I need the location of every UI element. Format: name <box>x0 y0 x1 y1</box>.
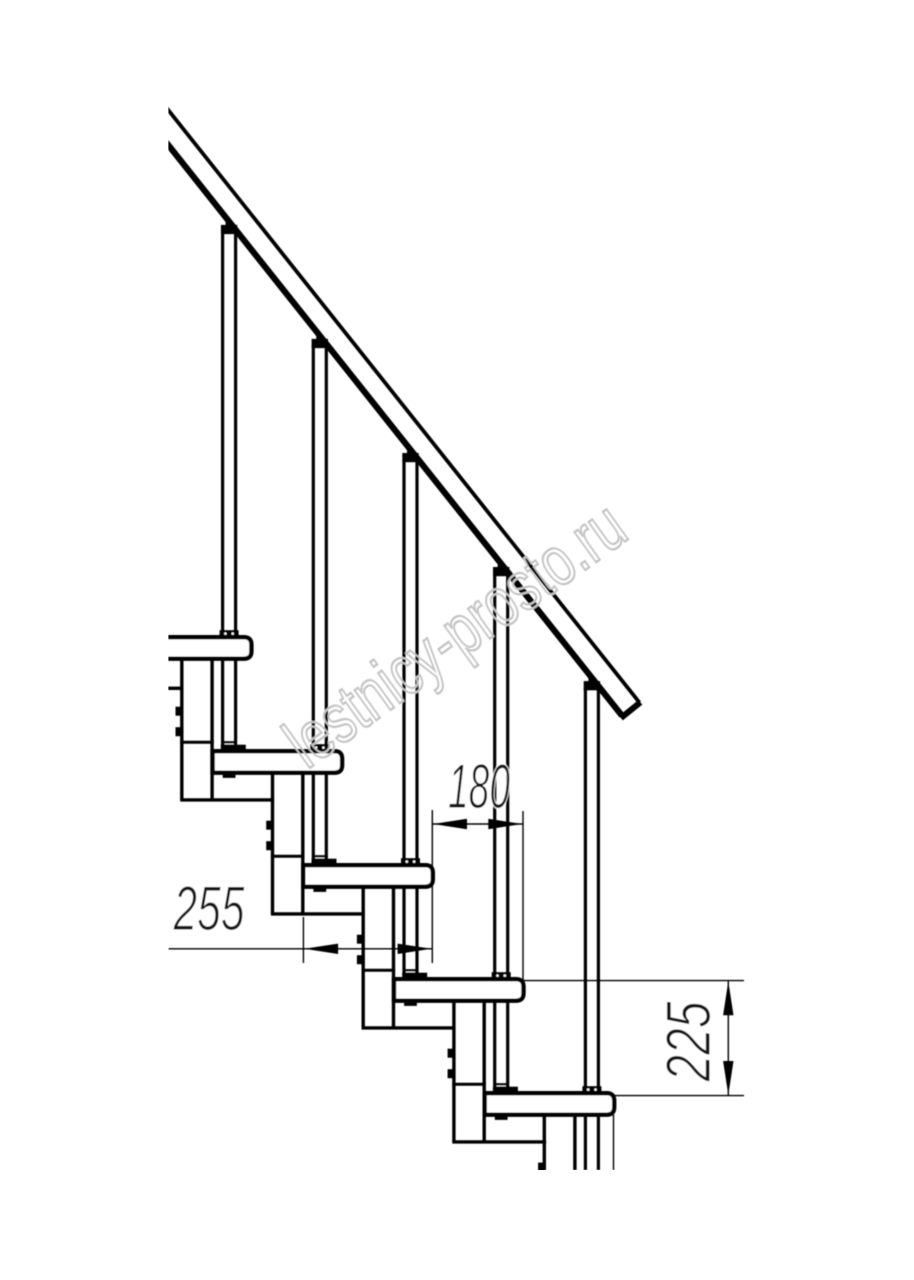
svg-text:225: 225 <box>654 1001 724 1082</box>
svg-text:255: 255 <box>173 874 245 944</box>
svg-text:180: 180 <box>448 752 510 822</box>
